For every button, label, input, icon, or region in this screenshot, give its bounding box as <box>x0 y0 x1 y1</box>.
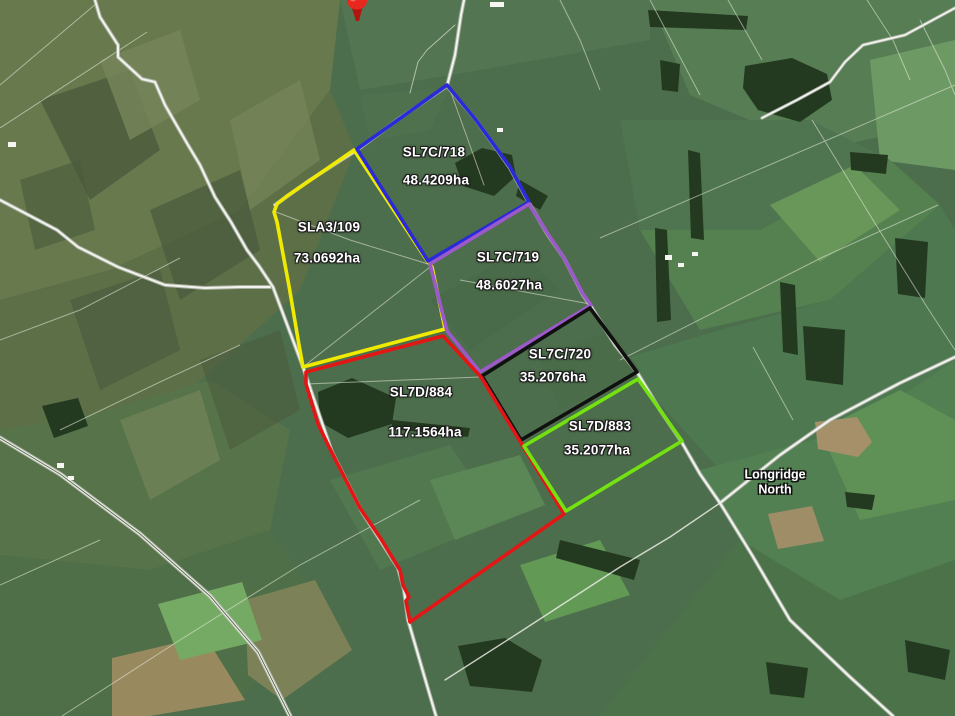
parcel-outline-sl7d-883[interactable] <box>524 379 682 511</box>
parcel-outline-sla3-109[interactable] <box>274 150 445 367</box>
parcel-overlay <box>0 0 955 716</box>
parcel-outline-sl7c-718[interactable] <box>357 85 529 261</box>
parcel-outline-sl7d-884[interactable] <box>306 336 564 622</box>
aerial-map-canvas[interactable]: Longridge North SLA3/10973.0692haSL7C/71… <box>0 0 955 716</box>
